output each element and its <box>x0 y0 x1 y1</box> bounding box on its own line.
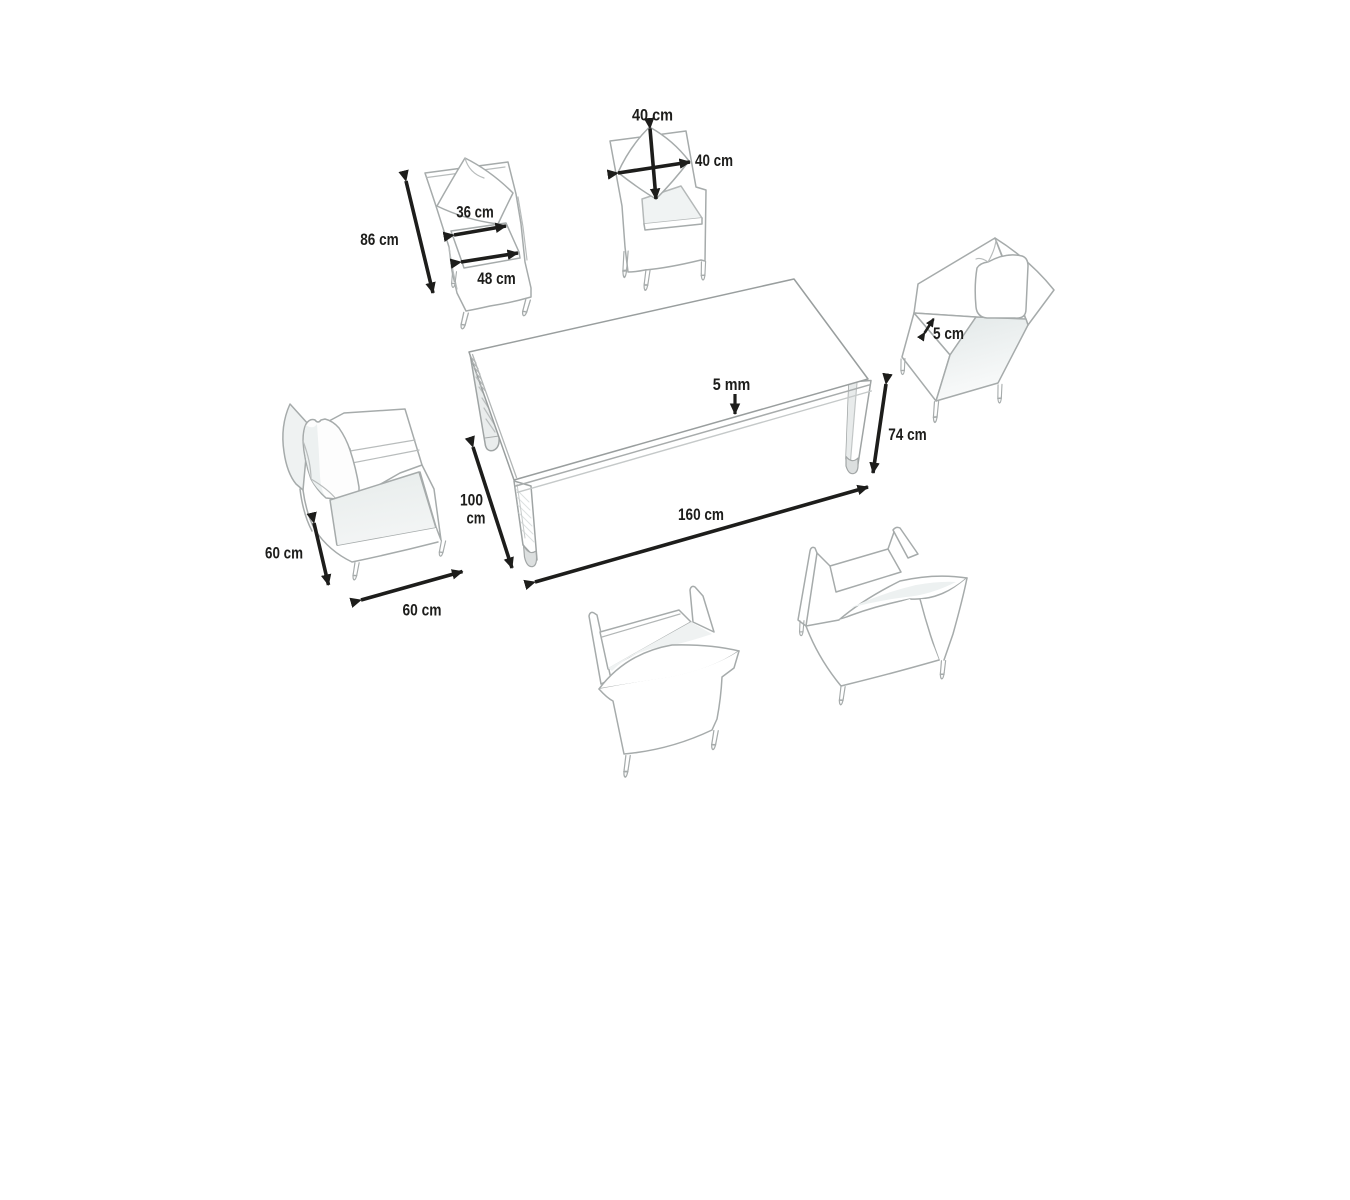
svg-text:40 cm: 40 cm <box>695 151 733 170</box>
svg-text:36 cm: 36 cm <box>456 203 494 222</box>
svg-text:86 cm: 86 cm <box>360 230 399 249</box>
svg-text:60 cm: 60 cm <box>403 601 442 620</box>
svg-text:100: 100 <box>460 491 483 510</box>
svg-text:5 mm: 5 mm <box>713 375 751 394</box>
svg-text:48 cm: 48 cm <box>477 269 516 288</box>
svg-text:74 cm: 74 cm <box>888 425 927 444</box>
svg-text:160 cm: 160 cm <box>678 505 724 524</box>
svg-text:60 cm: 60 cm <box>265 544 303 563</box>
svg-text:cm: cm <box>467 509 486 528</box>
svg-text:5 cm: 5 cm <box>933 324 964 343</box>
svg-text:40 cm: 40 cm <box>632 106 673 125</box>
